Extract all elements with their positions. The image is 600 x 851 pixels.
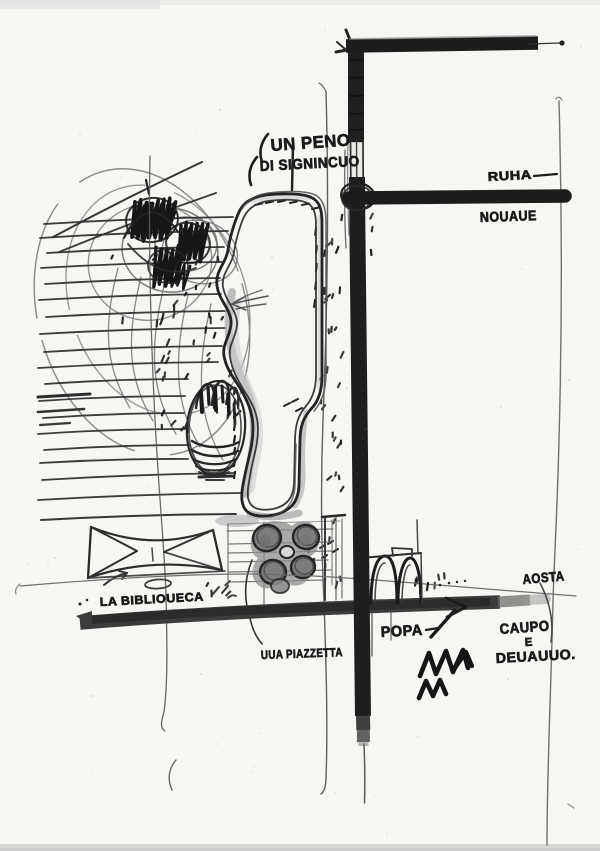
svg-text:NOUAUE: NOUAUE (480, 207, 538, 225)
svg-text:UUA PIAZZETTA: UUA PIAZZETTA (261, 645, 343, 662)
svg-text:POPA: POPA (380, 622, 423, 641)
svg-text:RUHA: RUHA (487, 168, 532, 184)
